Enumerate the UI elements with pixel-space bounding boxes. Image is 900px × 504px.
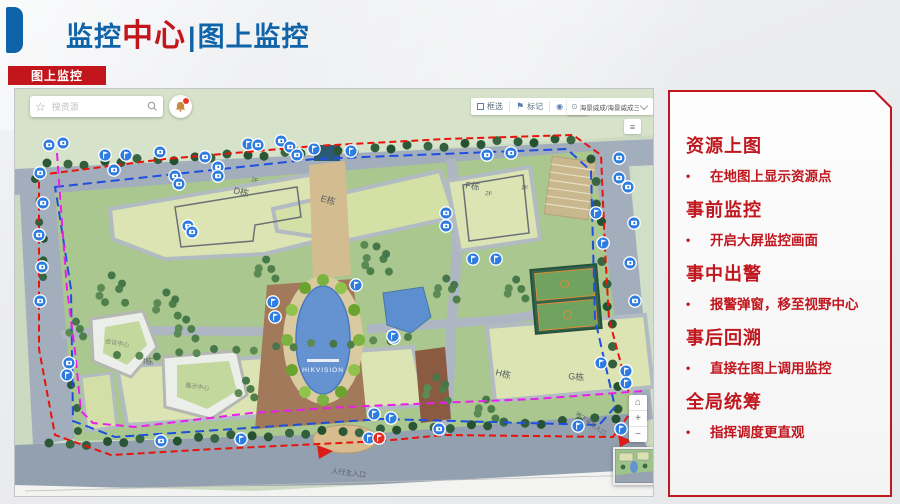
- camera-marker[interactable]: [433, 423, 445, 435]
- panel-heading-overall: 全局统筹: [686, 388, 878, 414]
- camera-marker[interactable]: [505, 147, 517, 159]
- search-input[interactable]: [50, 101, 147, 113]
- flag-marker[interactable]: [120, 149, 132, 161]
- title-separator: |: [188, 22, 196, 52]
- label-building-g: G栋: [568, 370, 585, 383]
- flag-marker[interactable]: [590, 207, 602, 219]
- flag-marker[interactable]: [615, 423, 627, 435]
- region-selector[interactable]: ⊙ 海景威成/海景威成三期园区: [567, 98, 653, 115]
- parking-strip: [544, 156, 596, 220]
- flag-marker[interactable]: [620, 365, 632, 377]
- panel-heading-resources: 资源上图: [686, 132, 878, 158]
- camera-marker[interactable]: [212, 170, 224, 182]
- flag-marker[interactable]: [597, 237, 609, 249]
- panel-heading-post-event: 事后回溯: [686, 324, 878, 350]
- flag-marker[interactable]: [267, 296, 279, 308]
- camera-marker[interactable]: [57, 137, 69, 149]
- panel-heading-pre-event: 事前监控: [686, 196, 878, 222]
- label-pond-logo: HIKVISION: [302, 367, 344, 374]
- map-canvas[interactable]: D栋 2F E栋 F栋 2F 1F G栋 H栋 I栋 会议中心 展示中心 HIK…: [14, 88, 654, 497]
- camera-marker[interactable]: [155, 435, 167, 447]
- panel-bullet-text: 直接在图上调用监控: [710, 359, 832, 378]
- camera-marker[interactable]: [43, 139, 55, 151]
- header-accent-bar: [6, 7, 23, 53]
- panel-bullet-pre-event: • 开启大屏监控画面: [686, 231, 878, 250]
- camera-marker[interactable]: [33, 229, 45, 241]
- camera-marker[interactable]: [186, 226, 198, 238]
- mark-label: 标记: [527, 101, 543, 112]
- zoom-out-button[interactable]: −: [629, 426, 647, 442]
- show-eye-icon: ◉: [556, 103, 563, 111]
- region-value: 海景威成/海景威成三期园区: [580, 102, 639, 112]
- plot-h-annex: [81, 373, 117, 431]
- site-plan-map[interactable]: D栋 2F E栋 F栋 2F 1F G栋 H栋 I栋 会议中心 展示中心 HIK…: [15, 89, 654, 497]
- page-title: 监控中心|图上监控: [66, 10, 310, 55]
- camera-marker[interactable]: [252, 139, 264, 151]
- camera-marker[interactable]: [624, 257, 636, 269]
- zoom-in-button[interactable]: +: [629, 410, 647, 426]
- panel-heading-in-event: 事中出警: [686, 260, 878, 286]
- flag-marker[interactable]: [572, 420, 584, 432]
- flag-marker[interactable]: [99, 149, 111, 161]
- flag-marker[interactable]: [269, 311, 281, 323]
- info-panel: 资源上图 • 在地图上显示资源点 事前监控 • 开启大屏监控画面 事中出警 • …: [668, 90, 892, 497]
- bullet-dot: •: [686, 231, 710, 250]
- home-button[interactable]: ⌂: [629, 395, 647, 410]
- camera-marker[interactable]: [37, 197, 49, 209]
- camera-marker[interactable]: [34, 295, 46, 307]
- title-part-1: 监控: [66, 22, 122, 52]
- alarm-bell-button[interactable]: [169, 95, 192, 118]
- panel-bullet-text: 报警弹窗，移至视野中心: [710, 295, 859, 314]
- camera-marker[interactable]: [440, 220, 452, 232]
- label-floor-1f-f: 1F: [521, 185, 529, 192]
- flag-marker[interactable]: [387, 330, 399, 342]
- flag-marker[interactable]: [595, 357, 607, 369]
- label-building-i: I栋: [143, 356, 153, 366]
- info-panel-body: 资源上图 • 在地图上显示资源点 事前监控 • 开启大屏监控画面 事中出警 • …: [670, 92, 890, 495]
- plaza-tan: [309, 161, 351, 279]
- legend-toggle-button[interactable]: ≡: [624, 119, 641, 134]
- flag-marker[interactable]: [61, 369, 73, 381]
- camera-marker[interactable]: [629, 295, 641, 307]
- camera-marker[interactable]: [613, 152, 625, 164]
- mark-flag-icon: ⚑: [516, 102, 524, 111]
- pond-stage: [307, 359, 339, 362]
- central-pond: [296, 286, 350, 394]
- flag-marker[interactable]: [345, 145, 357, 157]
- box-select-icon: [477, 103, 484, 110]
- tab-map-monitor[interactable]: 图上监控: [8, 66, 106, 85]
- title-part-3: 图上监控: [198, 22, 310, 52]
- label-floor-2f-f: 2F: [485, 191, 493, 198]
- bullet-dot: •: [686, 423, 710, 442]
- label-building-f: F栋: [465, 179, 481, 192]
- bullet-dot: •: [686, 359, 710, 378]
- camera-marker[interactable]: [628, 217, 640, 229]
- flag-marker[interactable]: [308, 143, 320, 155]
- chevron-down-icon: [640, 101, 648, 109]
- panel-bullet-text: 指挥调度更直观: [710, 423, 805, 442]
- minimap-thumb: [615, 449, 654, 483]
- alarm-marker[interactable]: [373, 432, 385, 444]
- camera-marker[interactable]: [34, 167, 46, 179]
- camera-marker[interactable]: [154, 146, 166, 158]
- search-icon[interactable]: [147, 101, 158, 112]
- flag-marker[interactable]: [620, 377, 632, 389]
- location-pin-icon: ⊙: [571, 103, 578, 111]
- panel-bullet-in-event: • 报警弹窗，移至视野中心: [686, 295, 878, 314]
- camera-marker[interactable]: [36, 261, 48, 273]
- box-select-tool[interactable]: 框选: [477, 101, 503, 112]
- panel-bullet-text: 开启大屏监控画面: [710, 231, 818, 250]
- flag-marker[interactable]: [368, 408, 380, 420]
- box-select-label: 框选: [487, 101, 503, 112]
- page-header: 监控中心|图上监控: [0, 0, 900, 62]
- flag-marker[interactable]: [467, 253, 479, 265]
- mark-tool[interactable]: ⚑ 标记: [509, 101, 543, 112]
- camera-marker[interactable]: [291, 149, 303, 161]
- camera-marker[interactable]: [199, 151, 211, 163]
- minimap[interactable]: [613, 447, 654, 485]
- flag-marker[interactable]: [350, 279, 362, 291]
- camera-marker[interactable]: [173, 178, 185, 190]
- flag-marker[interactable]: [235, 433, 247, 445]
- bullet-dot: •: [686, 295, 710, 314]
- map-search-bar[interactable]: ☆: [30, 96, 163, 117]
- legend-icon: ≡: [630, 122, 635, 132]
- flag-marker[interactable]: [490, 253, 502, 265]
- camera-marker[interactable]: [622, 181, 634, 193]
- map-zoom-controls: ⌂ + −: [629, 395, 647, 442]
- panel-bullet-text: 在地图上显示资源点: [710, 167, 832, 186]
- favorite-star-icon[interactable]: ☆: [35, 101, 46, 113]
- panel-bullet-resources: • 在地图上显示资源点: [686, 167, 878, 186]
- title-part-2: 中心: [122, 18, 186, 53]
- panel-bullet-post-event: • 直接在图上调用监控: [686, 359, 878, 378]
- flag-marker[interactable]: [385, 412, 397, 424]
- camera-marker[interactable]: [63, 357, 75, 369]
- camera-marker[interactable]: [481, 149, 493, 161]
- camera-marker[interactable]: [108, 164, 120, 176]
- bullet-dot: •: [686, 167, 710, 186]
- camera-marker[interactable]: [440, 207, 452, 219]
- panel-bullet-overall: • 指挥调度更直观: [686, 423, 878, 442]
- notification-dot: [182, 97, 190, 105]
- basketball-courts: [530, 264, 601, 334]
